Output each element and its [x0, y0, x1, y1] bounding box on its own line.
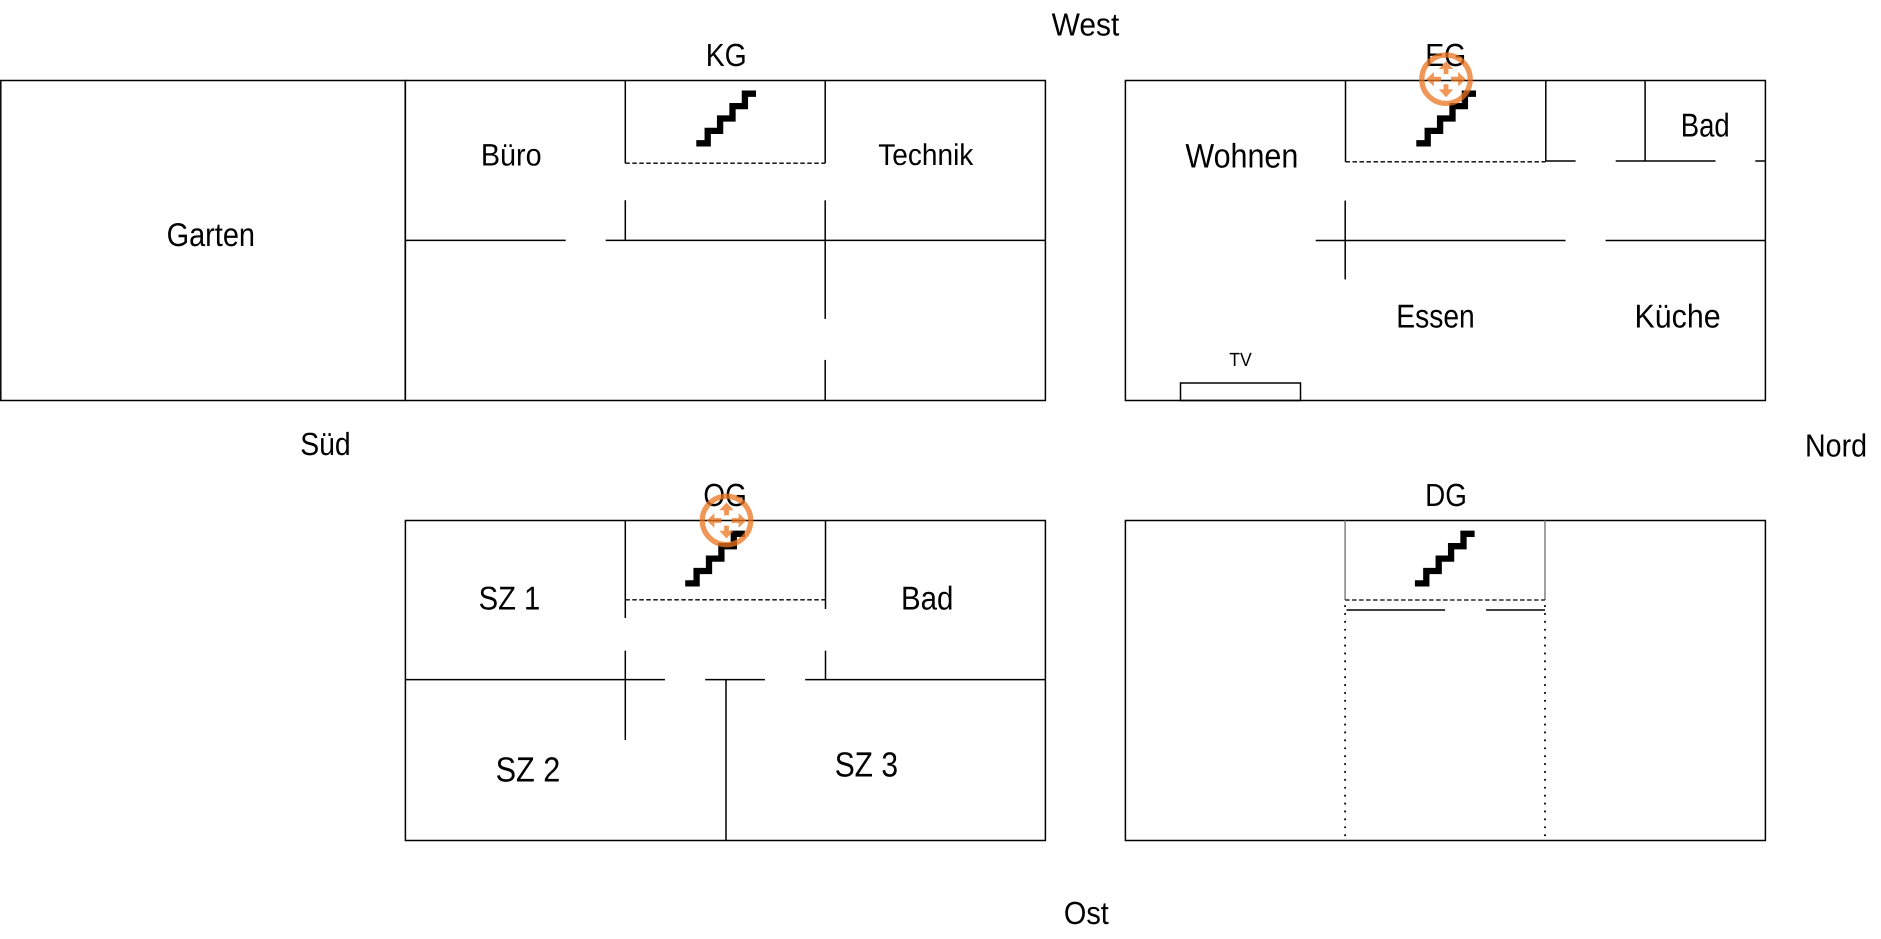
svg-text:SZ 2: SZ 2 [496, 751, 561, 790]
svg-text:Garten: Garten [167, 216, 255, 253]
svg-text:TV: TV [1229, 350, 1252, 371]
svg-text:Küche: Küche [1635, 297, 1721, 334]
svg-text:DG: DG [1425, 477, 1467, 513]
svg-text:SZ 3: SZ 3 [835, 745, 898, 784]
svg-text:Technik: Technik [878, 139, 974, 172]
svg-text:KG: KG [706, 37, 747, 73]
svg-text:Wohnen: Wohnen [1185, 138, 1298, 176]
svg-text:Ost: Ost [1064, 895, 1109, 931]
svg-text:Bad: Bad [901, 579, 953, 616]
svg-text:Büro: Büro [481, 138, 542, 173]
svg-text:Süd: Süd [300, 426, 351, 462]
svg-text:Essen: Essen [1396, 297, 1474, 334]
svg-text:Bad: Bad [1681, 107, 1730, 144]
svg-text:Nord: Nord [1805, 428, 1867, 464]
svg-text:SZ 1: SZ 1 [479, 579, 541, 616]
svg-text:West: West [1052, 7, 1120, 43]
